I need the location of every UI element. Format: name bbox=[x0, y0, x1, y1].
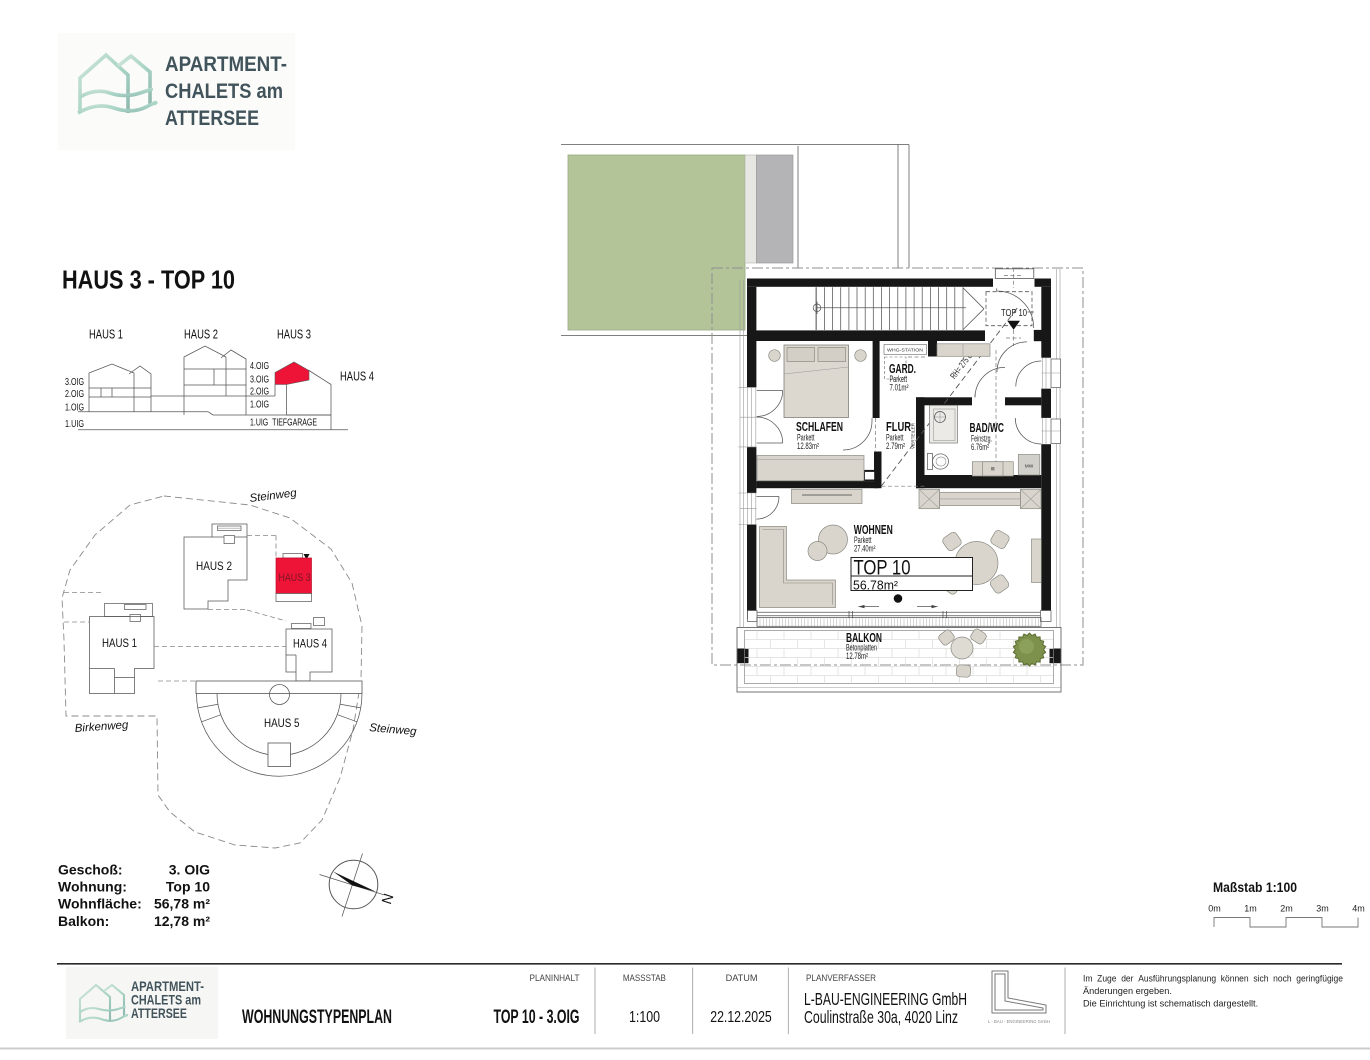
svg-text:1m: 1m bbox=[1244, 904, 1257, 914]
svg-text:6.76m²: 6.76m² bbox=[971, 442, 989, 452]
svg-text:N: N bbox=[379, 892, 397, 907]
svg-text:WHG-STATION: WHG-STATION bbox=[887, 347, 924, 353]
svg-text:56.78m²: 56.78m² bbox=[853, 579, 898, 593]
svg-text:12.78m²: 12.78m² bbox=[846, 651, 868, 661]
svg-text:HAUS 3: HAUS 3 bbox=[279, 572, 311, 584]
svg-text:HAUS 2: HAUS 2 bbox=[184, 328, 218, 342]
svg-text:HAUS 1: HAUS 1 bbox=[89, 328, 123, 342]
svg-text:HAUS 3: HAUS 3 bbox=[277, 328, 311, 342]
svg-text:Im Zuge der Ausführungsplan: Im Zuge der Ausführungsplanung können si… bbox=[1083, 974, 1343, 984]
svg-text:1:100: 1:100 bbox=[629, 1009, 660, 1026]
svg-text:ATTERSEE: ATTERSEE bbox=[165, 106, 259, 130]
svg-text:Top 10: Top 10 bbox=[166, 879, 210, 895]
svg-text:3.OIG: 3.OIG bbox=[250, 374, 269, 386]
svg-text:12,78 m²: 12,78 m² bbox=[154, 913, 210, 929]
svg-text:4.OIG: 4.OIG bbox=[250, 360, 269, 372]
svg-text:HAUS 2: HAUS 2 bbox=[196, 559, 232, 573]
svg-text:2.79m²: 2.79m² bbox=[886, 441, 905, 451]
svg-text:12.83m²: 12.83m² bbox=[797, 441, 819, 451]
svg-text:Wohnung:: Wohnung: bbox=[58, 879, 127, 895]
svg-text:WOHNUNGSTYPENPLAN: WOHNUNGSTYPENPLAN bbox=[242, 1007, 392, 1028]
svg-text:2m: 2m bbox=[1280, 904, 1293, 914]
svg-text:MASSSTAB: MASSSTAB bbox=[623, 973, 666, 984]
svg-text:TOP 10 - 3.OIG: TOP 10 - 3.OIG bbox=[494, 1007, 580, 1028]
svg-text:Coulinstraße 30a, 4020 Linz: Coulinstraße 30a, 4020 Linz bbox=[804, 1007, 958, 1027]
svg-text:PLANINHALT: PLANINHALT bbox=[530, 973, 580, 984]
svg-text:PLANVERFASSER: PLANVERFASSER bbox=[806, 973, 876, 984]
svg-text:2.OIG: 2.OIG bbox=[65, 388, 84, 400]
svg-text:3m: 3m bbox=[1316, 904, 1329, 914]
svg-text:L-BAU-ENGINEERING GmbH: L-BAU-ENGINEERING GmbH bbox=[804, 989, 967, 1009]
svg-text:HAUS 3 - TOP 10: HAUS 3 - TOP 10 bbox=[62, 265, 235, 295]
svg-text:Birkenweg: Birkenweg bbox=[74, 719, 129, 735]
svg-text:MW: MW bbox=[1025, 464, 1034, 470]
svg-text:DATUM: DATUM bbox=[726, 973, 758, 984]
svg-text:VERTEILER: VERTEILER bbox=[911, 422, 917, 449]
svg-text:4m: 4m bbox=[1352, 904, 1365, 914]
svg-text:27.40m²: 27.40m² bbox=[854, 544, 876, 554]
svg-text:L - BAU - ENGINEERING GmbH: L - BAU - ENGINEERING GmbH bbox=[988, 1019, 1050, 1024]
svg-text:22.12.2025: 22.12.2025 bbox=[710, 1009, 772, 1026]
svg-text:Steinweg: Steinweg bbox=[249, 487, 298, 505]
svg-text:ATTERSEE: ATTERSEE bbox=[131, 1005, 187, 1021]
svg-text:1.OIG: 1.OIG bbox=[250, 399, 269, 411]
svg-text:Maßstab 1:100: Maßstab 1:100 bbox=[1213, 879, 1297, 895]
svg-text:CHALETS am: CHALETS am bbox=[165, 79, 283, 103]
svg-text:0m: 0m bbox=[1208, 904, 1221, 914]
svg-text:HAUS 4: HAUS 4 bbox=[340, 370, 374, 384]
svg-text:3.OIG: 3.OIG bbox=[65, 376, 84, 388]
svg-text:HAUS 5: HAUS 5 bbox=[264, 716, 300, 730]
svg-text:APARTMENT-: APARTMENT- bbox=[165, 52, 287, 76]
svg-text:Wohnfläche:: Wohnfläche: bbox=[58, 896, 142, 912]
svg-text:Die Einrichtung ist schematisc: Die Einrichtung ist schematisch dargeste… bbox=[1083, 999, 1258, 1009]
svg-text:1.UIG: 1.UIG bbox=[65, 418, 84, 430]
svg-text:TOP 10: TOP 10 bbox=[1001, 308, 1027, 319]
svg-text:HAUS 1: HAUS 1 bbox=[102, 636, 137, 650]
svg-text:1.UIG TIEFGARAGE: 1.UIG TIEFGARAGE bbox=[250, 417, 317, 429]
svg-text:Balkon:: Balkon: bbox=[58, 913, 109, 929]
svg-text:TOP 10: TOP 10 bbox=[854, 556, 911, 580]
svg-text:HAUS 4: HAUS 4 bbox=[293, 637, 327, 651]
svg-text:7.01m²: 7.01m² bbox=[890, 383, 909, 393]
svg-text:3. OIG: 3. OIG bbox=[169, 862, 210, 878]
svg-text:56,78 m²: 56,78 m² bbox=[154, 896, 210, 912]
svg-text:Änderungen ergeben.: Änderungen ergeben. bbox=[1083, 986, 1172, 996]
svg-text:Steinweg: Steinweg bbox=[369, 722, 418, 738]
svg-text:Geschoß:: Geschoß: bbox=[58, 862, 123, 878]
